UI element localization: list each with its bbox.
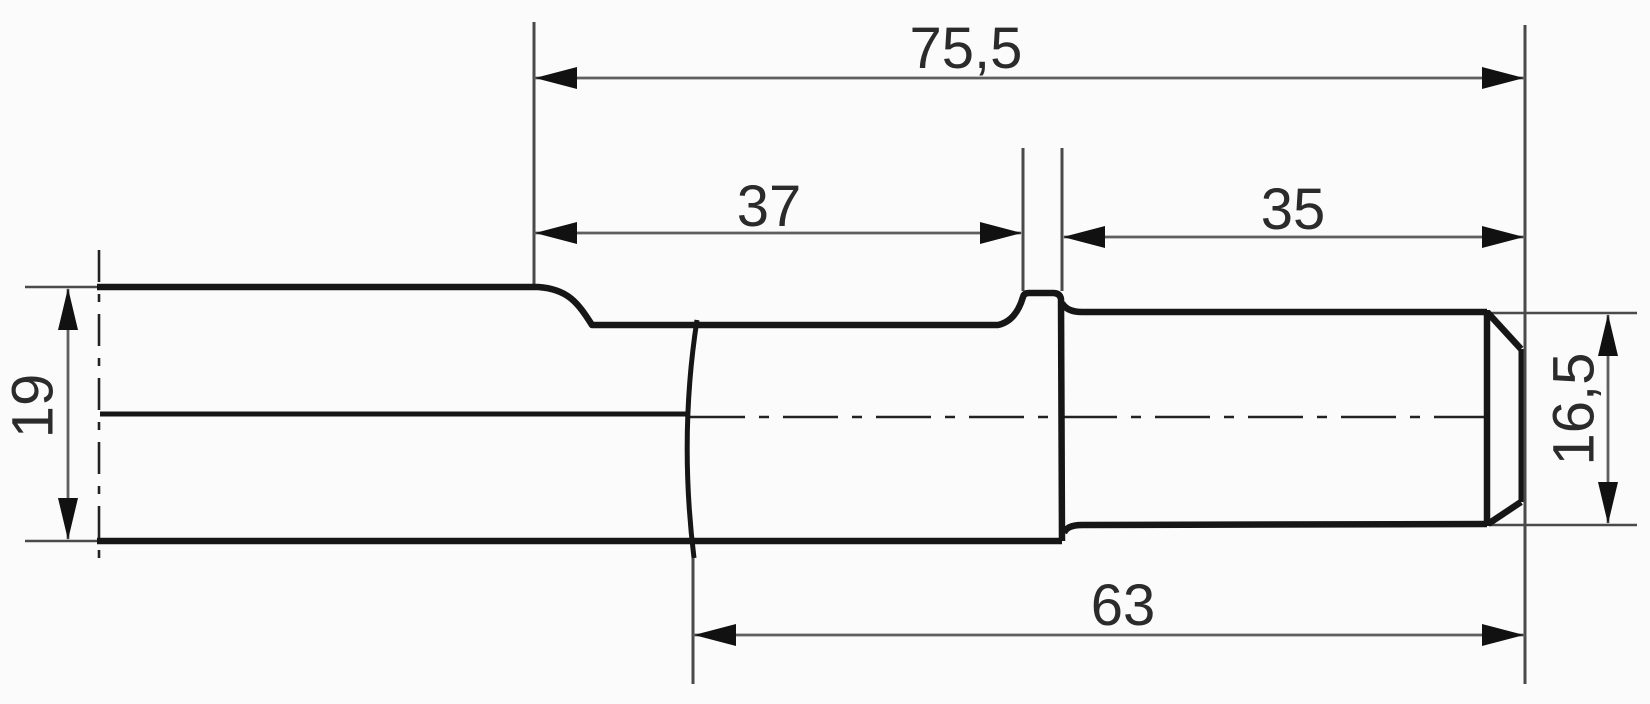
hex-shank-technical-drawing: 75,5 37 35 63 19 16,5	[0, 0, 1650, 704]
dim-label-collar-length: 37	[737, 174, 802, 239]
dim-label-tip-diameter: 16,5	[1542, 353, 1607, 466]
drawing-canvas: 75,5 37 35 63 19 16,5	[0, 0, 1650, 704]
dim-label-round-length: 63	[1091, 573, 1156, 638]
dim-label-hex-across-flats: 19	[1, 374, 66, 439]
drawing-background	[0, 0, 1650, 704]
dim-label-overall-length: 75,5	[910, 16, 1023, 81]
dim-label-tip-length: 35	[1261, 177, 1326, 242]
